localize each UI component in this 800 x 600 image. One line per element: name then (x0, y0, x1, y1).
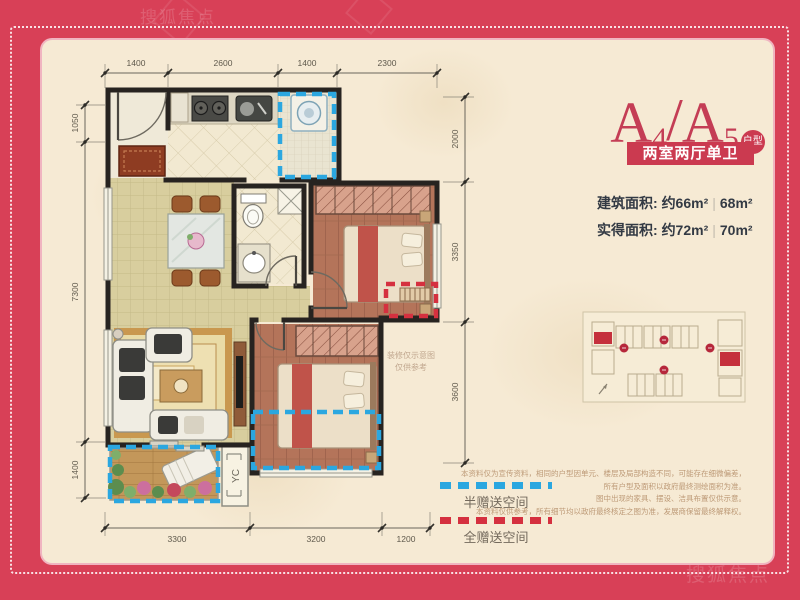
wash-basin (243, 253, 265, 273)
dim-label: 2000 (450, 129, 460, 148)
highlighted-unit (594, 332, 612, 344)
chair (200, 196, 220, 212)
toilet-tank (241, 194, 266, 203)
built-area-value2: 68m² (720, 195, 753, 211)
dim-label: 3300 (168, 534, 187, 544)
washing-machine (291, 95, 327, 131)
sink (236, 96, 272, 121)
dim-label: 2300 (378, 58, 397, 68)
disclaimer-line: 本资料仅供参考，所有细节均以政府最终核定之图为准，发展商保留最终解释权。 (436, 506, 746, 519)
wardrobe (296, 326, 378, 356)
stove (192, 96, 228, 121)
pillow (401, 233, 422, 248)
pillow (343, 371, 364, 387)
decoration-note: 装修仅示意图 仅供参考 (378, 350, 444, 374)
area-info: 建筑面积: 约66m²|68m² 实得面积: 约72m²|70m² (597, 193, 777, 247)
ac-label: YC (231, 469, 242, 483)
floor-lamp (113, 329, 123, 339)
dim-label: 3600 (450, 382, 460, 401)
disclaimer-line: 本资料仅为宣传资料，相同的户型因单元、楼层及局部构造不同，可能存在细微偏差， (436, 468, 746, 481)
pillow (402, 252, 423, 267)
decoration-note-line1: 装修仅示意图 (378, 350, 444, 362)
tv-cabinet (234, 342, 246, 426)
dim-label: 7300 (70, 282, 80, 301)
pillow (343, 393, 364, 409)
chair (200, 270, 220, 286)
decoration-note-line2: 仅供参考 (378, 362, 444, 374)
nightstand (420, 304, 431, 315)
nightstand (420, 211, 431, 222)
full-gift-label: 全赠送空间 (440, 527, 552, 546)
layout-subtitle: 两室两厅单卫 (627, 142, 754, 165)
highlighted-unit (720, 352, 740, 366)
tv (236, 356, 243, 408)
bed (278, 362, 376, 450)
nightstand (366, 452, 377, 463)
actual-area-value1: 约72m² (662, 222, 709, 238)
dim-label: 3200 (307, 534, 326, 544)
dim-label: 3350 (450, 242, 460, 261)
disclaimer-line: 所有户型及面积以政府最终测绘面积为准。 (436, 481, 746, 494)
dim-label: 1400 (298, 58, 317, 68)
window (104, 330, 112, 426)
living-room-furniture (113, 328, 246, 440)
dim-label: 2600 (214, 58, 233, 68)
disclaimer-line: 图中出现的家具、摆设、洁具布置仅供示意。 (436, 493, 746, 506)
actual-area-label: 实得面积: (597, 222, 658, 238)
watermark: 搜狐焦点 (140, 3, 216, 28)
built-area-value1: 约66m² (662, 195, 709, 211)
disclaimer: 本资料仅为宣传资料，相同的户型因单元、楼层及局部构造不同，可能存在细微偏差， 所… (436, 468, 746, 518)
ac-platform: YC (222, 446, 248, 506)
actual-area-row: 实得面积: 约72m²|70m² (597, 220, 777, 240)
doormat (119, 146, 165, 176)
key-plan (583, 312, 745, 402)
actual-area-value2: 70m² (720, 222, 753, 238)
bay-stool (400, 288, 430, 301)
full-gift-swatch (440, 517, 552, 524)
dim-label: 1050 (70, 113, 80, 132)
built-area-label: 建筑面积: (597, 195, 658, 211)
dim-label: 1400 (127, 58, 146, 68)
fridge (171, 93, 188, 122)
watermark: 搜狐焦点 (686, 560, 770, 587)
floorplan-poster: YC (0, 0, 800, 600)
divider: | (708, 222, 720, 238)
dim-label: 1400 (70, 460, 80, 479)
kitchen-counter (170, 92, 278, 124)
headboard (370, 362, 376, 450)
chair (172, 196, 192, 212)
window (104, 188, 112, 280)
chair (172, 270, 192, 286)
armchair (146, 328, 192, 362)
divider: | (708, 195, 720, 211)
chaise (150, 410, 228, 440)
built-area-row: 建筑面积: 约66m²|68m² (597, 193, 777, 213)
dim-label: 1200 (397, 534, 416, 544)
coffee-table (160, 370, 202, 402)
